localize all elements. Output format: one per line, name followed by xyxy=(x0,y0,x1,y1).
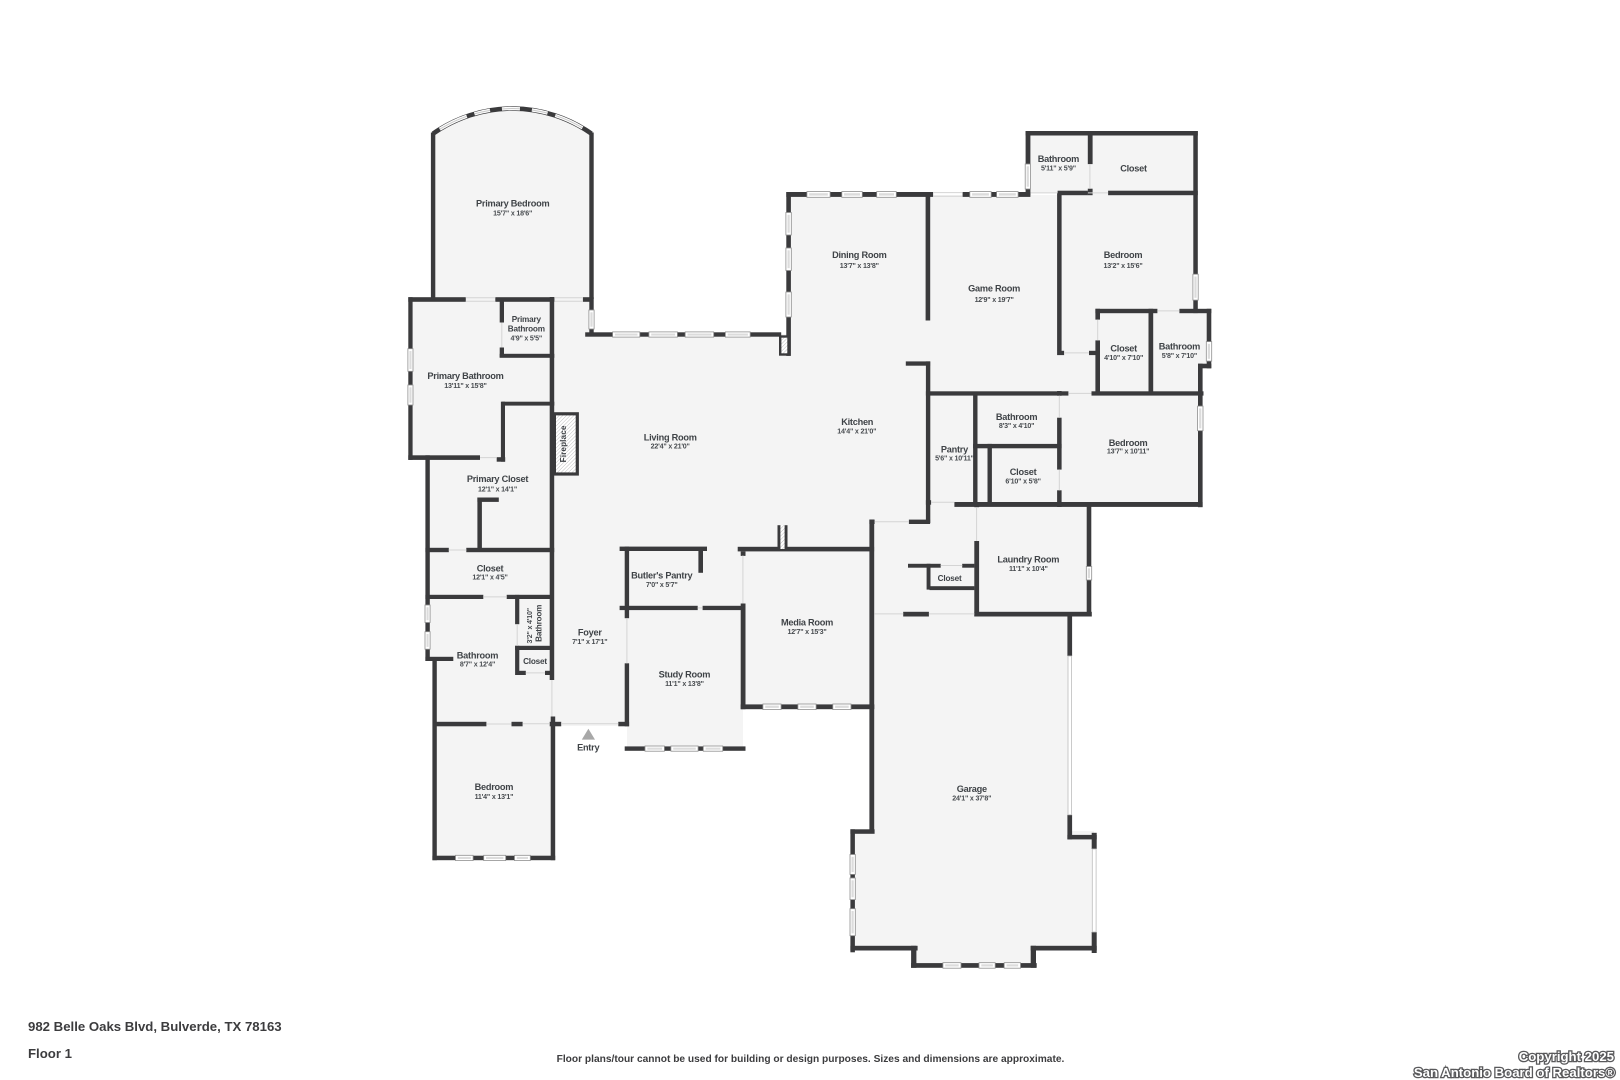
svg-text:Closet: Closet xyxy=(523,657,547,666)
svg-text:Entry: Entry xyxy=(577,743,600,753)
svg-text:Laundry Room: Laundry Room xyxy=(997,554,1059,564)
svg-text:5'8" x 7'10": 5'8" x 7'10" xyxy=(1162,352,1197,360)
svg-text:3'2" x 4'10": 3'2" x 4'10" xyxy=(526,608,534,643)
svg-text:Bathroom: Bathroom xyxy=(996,412,1037,422)
svg-text:4'10" x 7'10": 4'10" x 7'10" xyxy=(1104,354,1143,362)
svg-text:13'7" x 10'11": 13'7" x 10'11" xyxy=(1107,448,1149,456)
svg-text:Study Room: Study Room xyxy=(659,670,711,680)
svg-text:Closet: Closet xyxy=(1010,467,1037,477)
svg-text:12'1" x 4'5": 12'1" x 4'5" xyxy=(472,573,507,581)
svg-text:8'7" x 12'4": 8'7" x 12'4" xyxy=(460,661,495,669)
svg-text:Living Room: Living Room xyxy=(644,432,697,442)
svg-text:Primary Bathroom: Primary Bathroom xyxy=(427,371,503,381)
svg-text:Floor 1: Floor 1 xyxy=(28,1046,72,1061)
svg-text:Bathroom: Bathroom xyxy=(457,651,498,661)
svg-text:11'4" x 13'1": 11'4" x 13'1" xyxy=(475,793,514,801)
svg-text:Bedroom: Bedroom xyxy=(1104,250,1143,260)
svg-text:Closet: Closet xyxy=(1110,344,1137,354)
svg-text:Game Room: Game Room xyxy=(968,284,1020,294)
svg-text:7'0" x 5'7": 7'0" x 5'7" xyxy=(646,581,678,589)
svg-text:Closet: Closet xyxy=(938,574,962,583)
svg-text:13'2" x 15'6": 13'2" x 15'6" xyxy=(1103,262,1142,270)
svg-text:12'1" x 14'1": 12'1" x 14'1" xyxy=(478,485,517,493)
svg-text:13'7" x 13'8": 13'7" x 13'8" xyxy=(840,262,879,270)
svg-text:13'11" x 15'8": 13'11" x 15'8" xyxy=(444,382,486,390)
svg-text:4'9" x 5'5": 4'9" x 5'5" xyxy=(511,334,543,342)
svg-text:Primary: Primary xyxy=(512,315,542,324)
svg-text:Fireplace: Fireplace xyxy=(559,425,568,462)
svg-text:Bathroom: Bathroom xyxy=(535,605,544,642)
svg-text:Copyright 2025: Copyright 2025 xyxy=(1519,1049,1614,1064)
svg-text:Garage: Garage xyxy=(957,784,987,794)
svg-text:14'4" x 21'0": 14'4" x 21'0" xyxy=(837,428,876,436)
svg-text:12'7" x 15'3": 12'7" x 15'3" xyxy=(787,628,826,636)
svg-text:Closet: Closet xyxy=(477,564,504,574)
svg-text:Closet: Closet xyxy=(1120,163,1147,173)
svg-text:Bedroom: Bedroom xyxy=(1109,438,1148,448)
svg-text:12'9" x 19'7": 12'9" x 19'7" xyxy=(975,296,1014,304)
svg-text:Kitchen: Kitchen xyxy=(841,417,874,427)
svg-text:Primary Bedroom: Primary Bedroom xyxy=(476,198,549,208)
svg-text:7'1" x 17'1": 7'1" x 17'1" xyxy=(572,638,607,646)
svg-text:11'1" x 10'4": 11'1" x 10'4" xyxy=(1009,565,1048,573)
svg-text:24'1" x 37'8": 24'1" x 37'8" xyxy=(952,795,991,803)
svg-text:Pantry: Pantry xyxy=(941,444,969,454)
svg-text:982 Belle Oaks Blvd, Bulverde,: 982 Belle Oaks Blvd, Bulverde, TX 78163 xyxy=(28,1019,282,1034)
svg-text:Butler's Pantry: Butler's Pantry xyxy=(631,571,693,581)
svg-text:Bedroom: Bedroom xyxy=(475,782,514,792)
svg-text:Media Room: Media Room xyxy=(781,618,833,628)
svg-text:Bathroom: Bathroom xyxy=(1159,342,1200,352)
svg-text:6'10" x 5'8": 6'10" x 5'8" xyxy=(1005,477,1040,485)
svg-text:Bathroom: Bathroom xyxy=(1038,154,1079,164)
svg-text:Primary Closet: Primary Closet xyxy=(467,474,529,484)
svg-text:15'7" x 18'6": 15'7" x 18'6" xyxy=(493,210,532,218)
svg-text:11'1" x 13'8": 11'1" x 13'8" xyxy=(665,680,704,688)
svg-text:Floor plans/tour cannot be use: Floor plans/tour cannot be used for buil… xyxy=(557,1054,1065,1065)
svg-text:Bathroom: Bathroom xyxy=(508,325,545,334)
svg-text:Dining Room: Dining Room xyxy=(832,250,886,260)
svg-text:San Antonio Board of Realtors®: San Antonio Board of Realtors® xyxy=(1414,1065,1615,1080)
svg-text:Foyer: Foyer xyxy=(578,628,602,638)
svg-text:22'4" x 21'0": 22'4" x 21'0" xyxy=(651,443,690,451)
svg-text:5'11" x 5'9": 5'11" x 5'9" xyxy=(1041,165,1076,173)
svg-text:8'3" x 4'10": 8'3" x 4'10" xyxy=(999,422,1034,430)
svg-text:5'6" x 10'11": 5'6" x 10'11" xyxy=(935,455,974,463)
